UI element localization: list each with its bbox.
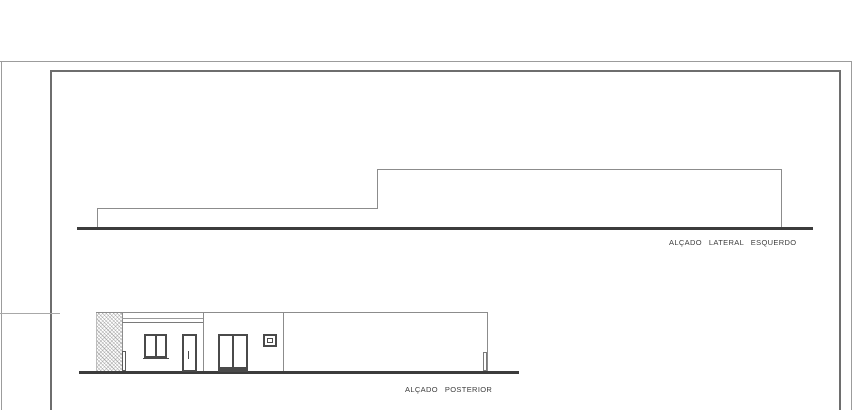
inner-border-left (50, 70, 52, 410)
elevation-roof-low (97, 208, 378, 209)
wall-plinth-step (122, 351, 126, 371)
elevation-wall-right (781, 169, 782, 227)
inner-border-right (839, 70, 841, 410)
window-sill (143, 358, 169, 360)
door-handle (188, 351, 190, 359)
ground-line (79, 371, 519, 374)
elevation-title-lateral-esquerdo: ALÇADO LATERAL ESQUERDO (669, 238, 797, 247)
fascia-line-upper (122, 318, 203, 319)
window-two-pane (144, 334, 167, 358)
facade-roof-edge (96, 312, 488, 313)
wall-junction-2 (283, 312, 284, 371)
downpipe (483, 352, 487, 371)
small-window (263, 334, 277, 347)
elevation-roof-step (377, 169, 378, 209)
elevation-roof-high (377, 169, 782, 170)
wall-section-hatch (96, 312, 123, 371)
drawing-sheet: ALÇADO LATERAL ESQUERDO ALÇADO POSTER (0, 0, 860, 410)
outer-border-left (1, 61, 2, 410)
double-door (218, 334, 248, 372)
small-window-inner-frame (267, 338, 273, 343)
double-door-sill (220, 367, 246, 370)
wall-junction-1 (203, 312, 204, 371)
door (182, 334, 197, 372)
inner-border-top (50, 70, 841, 72)
ground-line (77, 227, 813, 230)
double-door-mullion (232, 336, 234, 370)
elevation-wall-left (97, 208, 98, 227)
facade-wall-right (487, 312, 488, 371)
window-mullion (155, 336, 157, 356)
elevation-title-posterior: ALÇADO POSTERIOR (405, 385, 492, 394)
outer-border-top (0, 61, 852, 62)
outer-border-right (851, 61, 852, 410)
fold-mark (0, 313, 60, 314)
fascia-line-lower (122, 322, 203, 324)
